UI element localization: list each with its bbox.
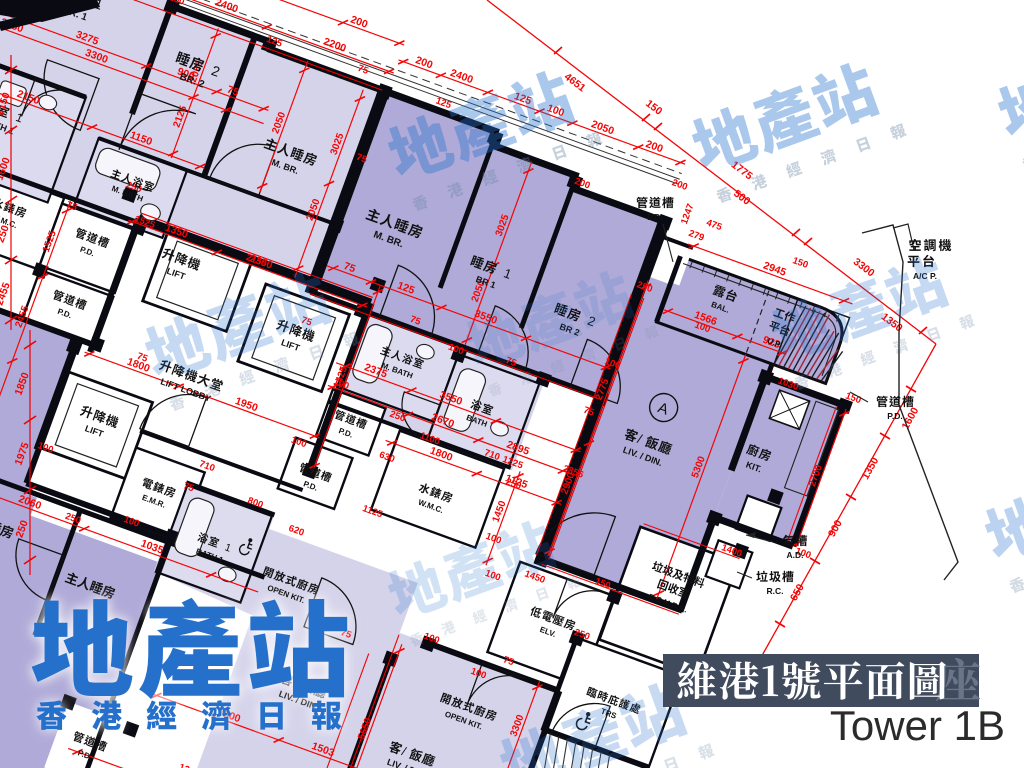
svg-text:P.D.: P.D.	[647, 212, 662, 222]
svg-text:Tower 1B: Tower 1B	[830, 702, 1005, 749]
svg-text:A.D.: A.D.	[787, 550, 804, 560]
svg-text:R.C.: R.C.	[767, 586, 784, 596]
svg-text:P.D.: P.D.	[887, 411, 902, 421]
